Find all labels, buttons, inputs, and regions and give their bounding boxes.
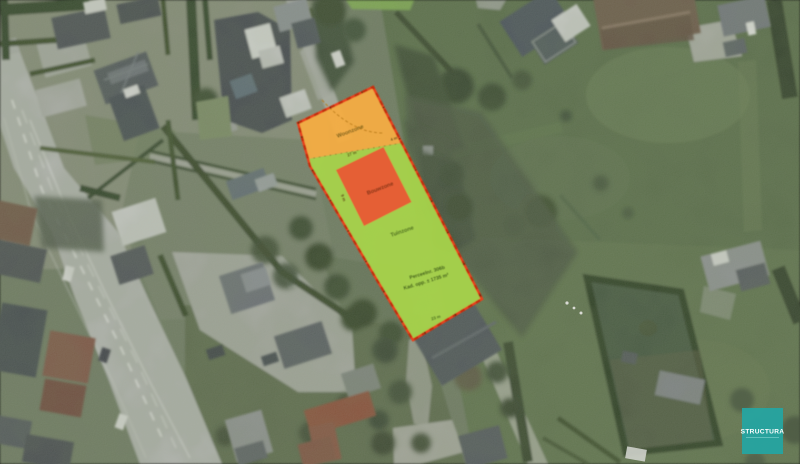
svg-text:STRUCTURA: STRUCTURA — [741, 429, 785, 436]
